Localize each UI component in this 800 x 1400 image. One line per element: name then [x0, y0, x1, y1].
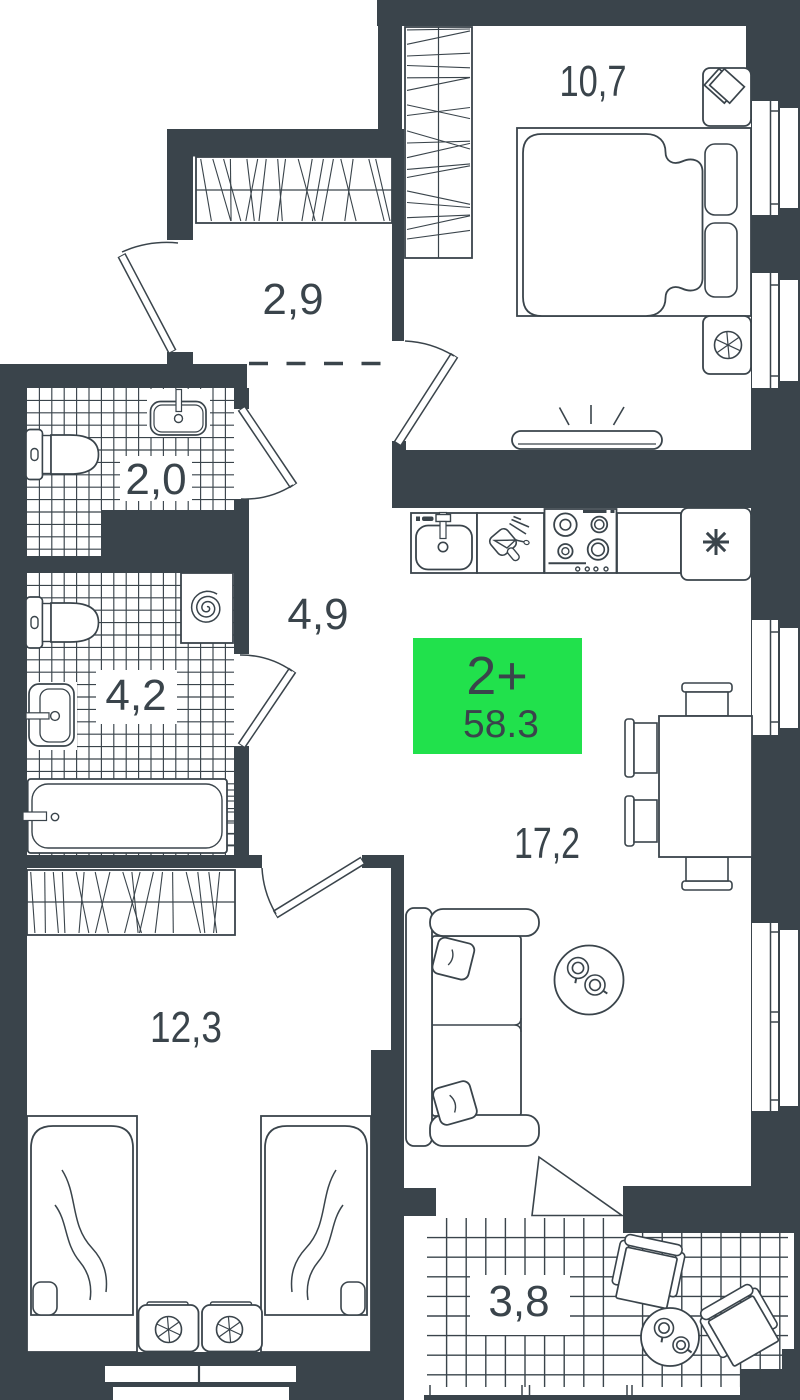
svg-text:2,9: 2,9: [262, 275, 323, 324]
svg-text:2+: 2+: [466, 646, 528, 706]
svg-text:17,2: 17,2: [514, 819, 580, 868]
svg-text:4,2: 4,2: [105, 671, 166, 720]
svg-text:3,8: 3,8: [488, 1277, 549, 1326]
svg-text:4,9: 4,9: [287, 590, 348, 639]
svg-text:2,0: 2,0: [125, 455, 186, 504]
svg-text:58.3: 58.3: [463, 703, 539, 746]
svg-text:12,3: 12,3: [150, 1003, 222, 1052]
svg-text:10,7: 10,7: [560, 57, 627, 106]
